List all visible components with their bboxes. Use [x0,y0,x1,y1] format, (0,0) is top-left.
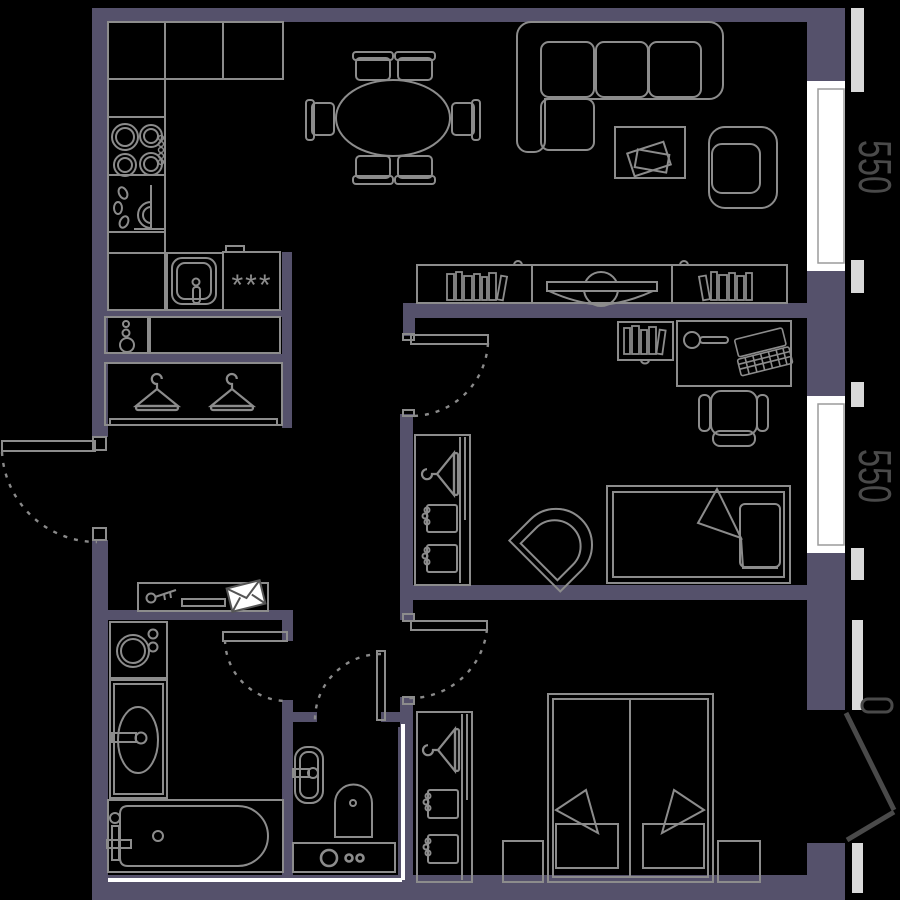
entrance-door-jamb [93,528,106,540]
dining-table [336,80,450,156]
sill-strip [852,843,863,893]
wall-mid-stub [403,303,415,336]
balcony-door-handle [862,699,892,712]
toilet [335,785,372,838]
bathtub-drain [153,831,163,841]
single-bed [607,486,790,583]
bathtub [107,800,283,872]
hall-shelf [150,317,280,353]
wall-bedrooms-divider [400,585,845,600]
kitchen-counter-cell [108,253,165,310]
blanket-fold [662,790,704,833]
bathroom-door-leaf [223,632,287,641]
highlight-bath-bottom [108,878,402,882]
sill-strip [851,8,864,92]
window-bedroom1 [807,396,845,553]
wall-toilet-top-a [293,712,317,722]
floor-plan-canvas: 550 550 [0,0,900,900]
dining-chair [395,52,435,80]
bedroom1-door-jamb [403,334,414,340]
wall-right-1 [807,8,845,81]
wall-edge-highlights [108,724,405,882]
wall-left-lower [92,540,108,900]
sill-strip [852,620,863,710]
toilet-room [293,747,395,872]
dining-chair [353,156,393,184]
kitchen [108,22,283,310]
bathtub-faucet-knob [110,813,120,823]
kitchen-counter-cell [108,79,165,117]
pillow [740,504,780,567]
balcony-door-leaf [846,713,894,840]
wall-toilet-right [398,727,413,875]
laptop [732,327,792,376]
sill-strip [851,382,864,407]
envelope-icon [227,580,266,612]
bedroom2-wardrobe [417,712,472,882]
books-right [699,272,752,300]
bathtub-faucet-pipe [112,826,119,860]
stove [108,117,165,176]
desk-chair [699,391,768,446]
walls [92,8,845,900]
blanket-fold [556,790,598,833]
entrance-door-swing-arc [2,452,97,542]
toilet-room-appliance [293,843,395,872]
toilet-door-swing-arc [315,654,381,720]
bedroom1-wardrobe [415,435,470,585]
highlight-toilet-right [401,724,405,880]
window-living-room [807,81,845,271]
dining-set [306,52,480,184]
bathroom-door-swing-arc [225,640,287,701]
wall-mid-horizontal [406,303,845,318]
bedroom2-door-leaf [411,621,487,630]
bedroom1-door-jamb [403,410,414,416]
window-middle-dimension-label: 550 [849,449,900,503]
wall-hall-h1 [105,310,282,317]
tv [547,272,657,306]
pillow [556,824,618,868]
sill-strip [851,260,864,293]
desk-lamp [684,332,728,348]
balcony-door [846,699,894,840]
vanity-sink [110,680,167,798]
hanger-icon [423,729,459,771]
tub-chair [509,494,607,592]
bedroom2-door-swing-arc [409,629,487,698]
kitchen-counter-cell [108,232,165,253]
blanket-fold [698,489,778,568]
hanger-icon [422,453,458,495]
hall-cabinet-small [105,317,148,353]
desk [618,321,793,386]
entrance-door-leaf [2,441,95,451]
bedroom1 [415,321,793,591]
kitchen-upper-cabinets [108,22,283,79]
bedroom2 [417,694,760,882]
hallway-storage [105,317,282,425]
coffee-table [615,127,685,178]
kitchen-sink [167,253,223,310]
window-top-dimension-label: 550 [849,140,900,194]
bedroom1-door-leaf [411,335,488,344]
dining-chair [452,100,480,140]
living-room [517,22,777,208]
floor-plan: 550 550 [0,0,900,900]
wall-right-4 [807,843,845,900]
stove-knobs [159,136,164,165]
bedroom1-door-swing-arc [409,343,488,416]
dining-chair [395,156,435,184]
sill-strip [851,548,864,580]
corridor-console [138,580,268,612]
dining-chair [353,52,393,80]
wall-top [92,8,845,22]
wall-hall-h2 [105,354,282,362]
key-icon [147,590,177,603]
pillow [643,824,704,868]
kitchen-drainer [108,175,165,232]
hanger-icon [211,374,253,410]
wall-right-2 [807,271,845,396]
corner-sofa [517,22,723,152]
toilet-sink [293,747,323,803]
console-tray [182,599,225,606]
wall-lobby-stub [400,697,413,727]
toilet-door-leaf [377,651,385,720]
freezer-stars-icon: *** [231,269,272,302]
hall-wardrobe [105,363,282,425]
tv-sideboard [417,261,787,306]
bathroom [107,622,283,872]
hanger-icon [136,374,178,410]
books-left [447,272,507,300]
wall-right-3 [807,553,845,710]
double-bed [548,694,713,882]
desk-organizer-books [624,326,666,354]
washing-machine [110,622,167,678]
wall-kitchen-hall-divider [282,252,292,428]
armchair [709,127,777,208]
dining-chair [306,100,334,140]
